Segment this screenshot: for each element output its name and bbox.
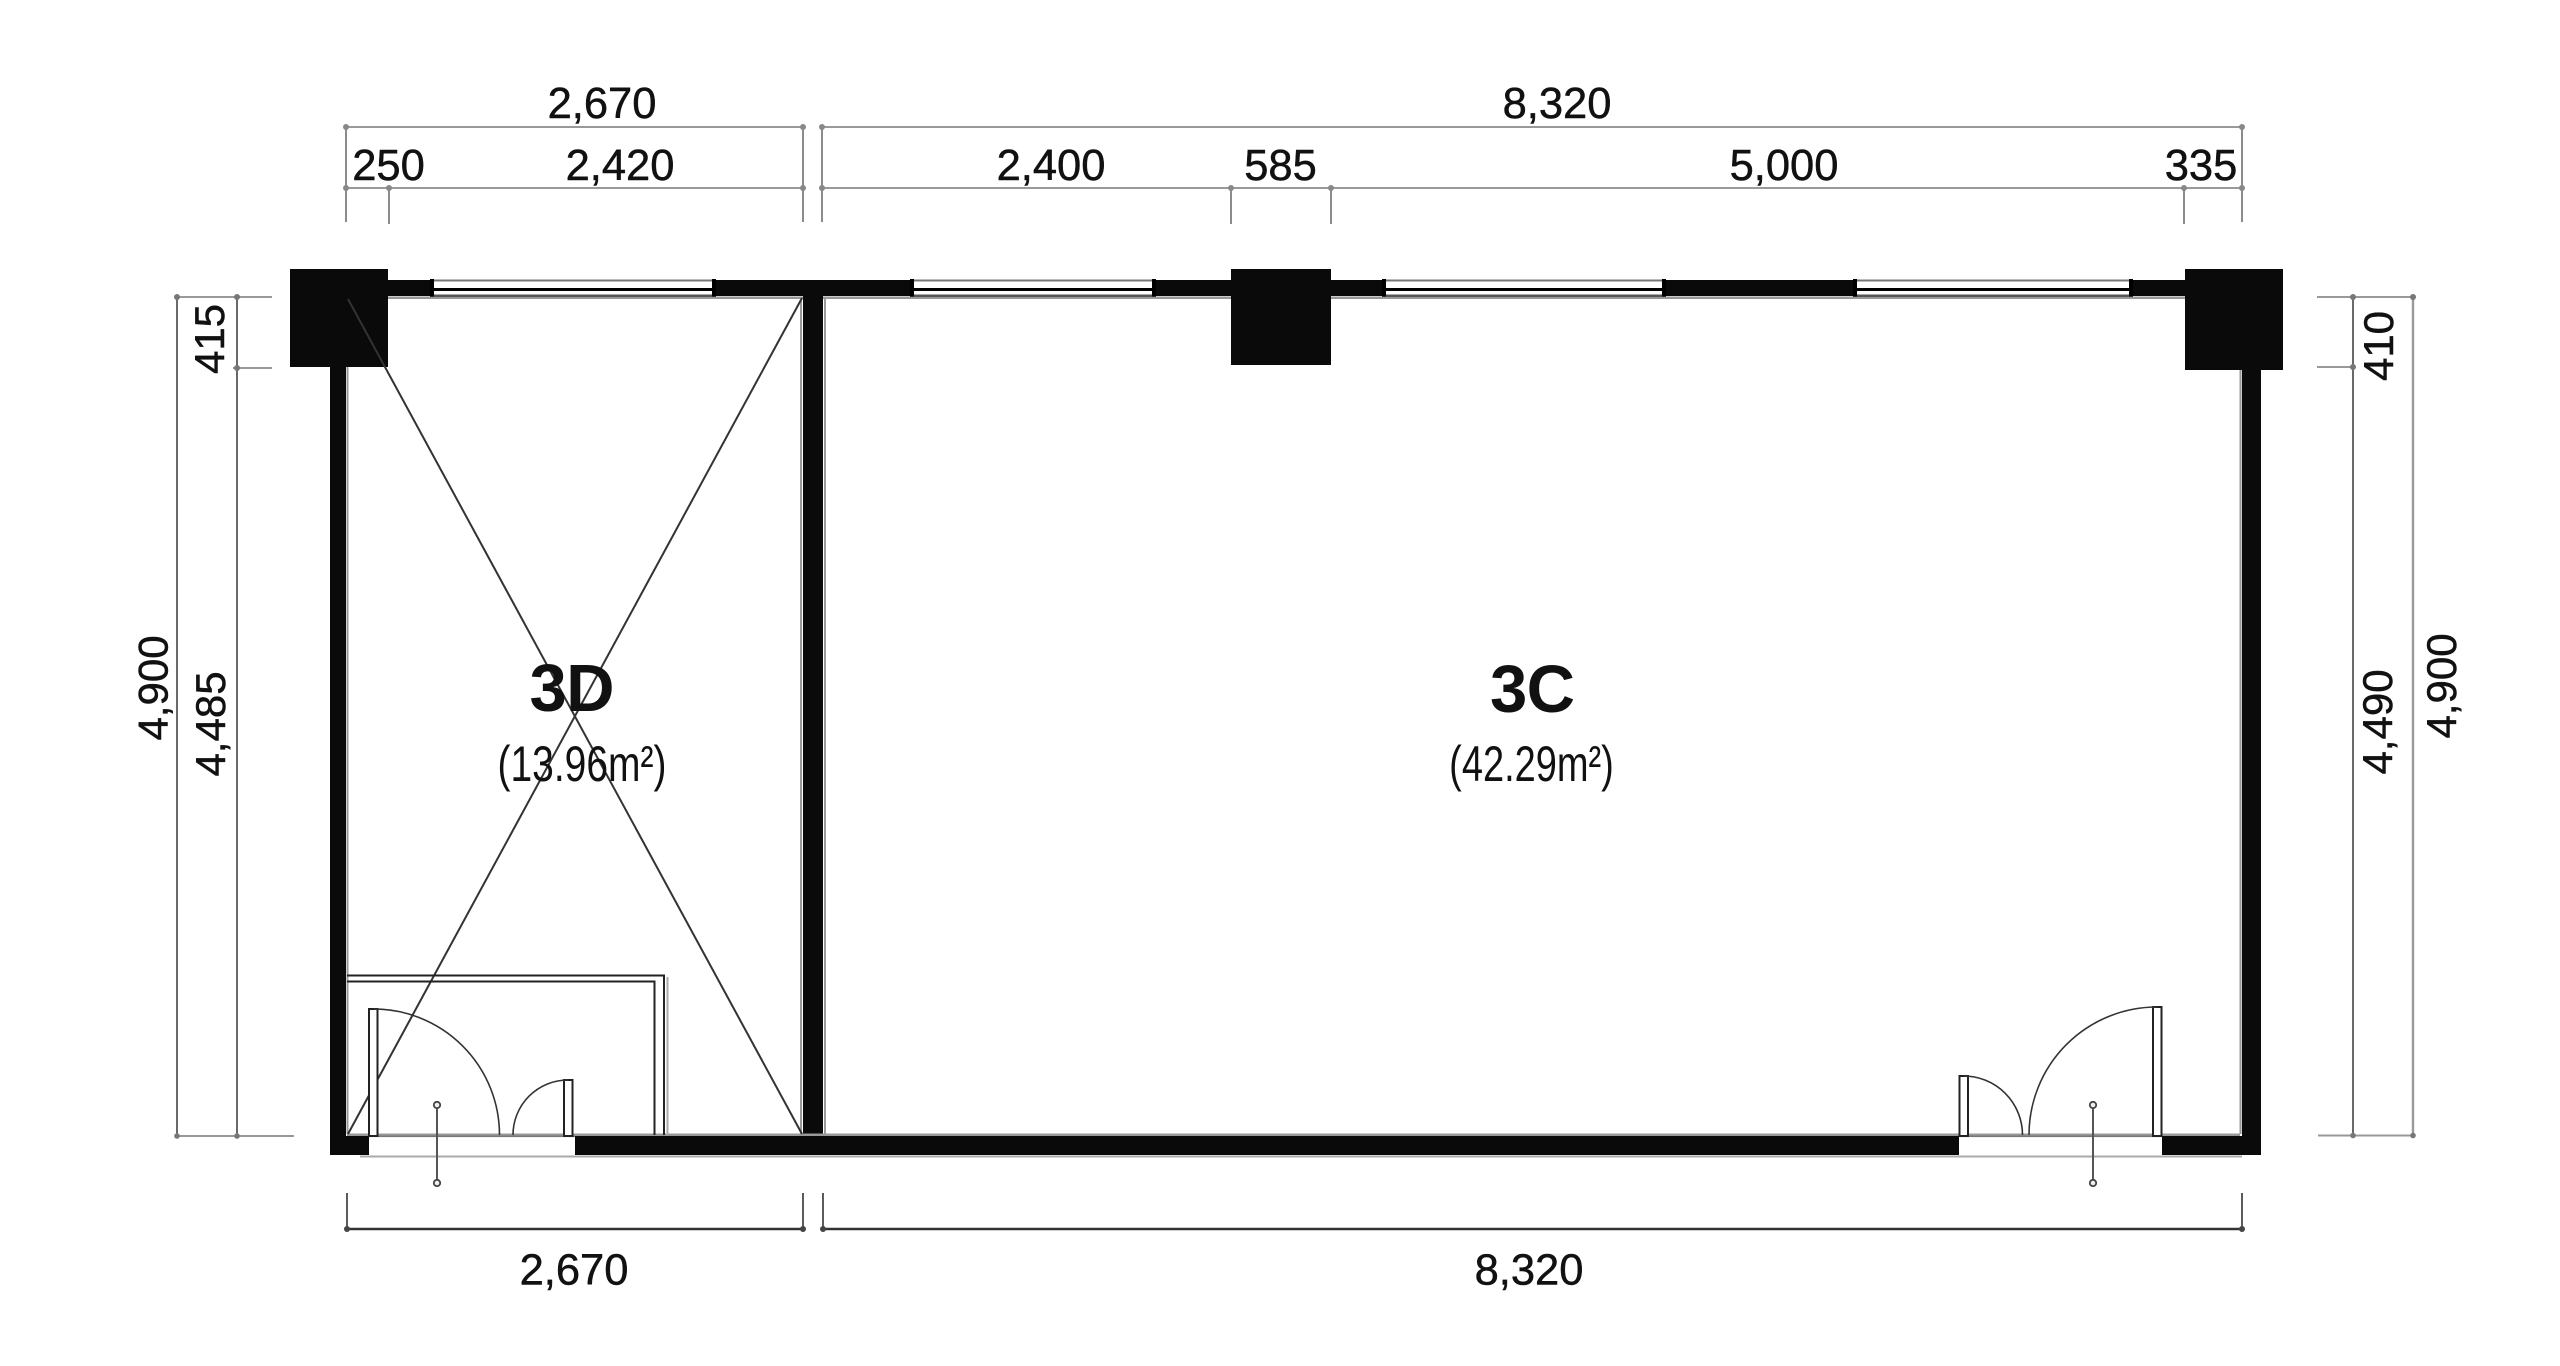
svg-text:4,900: 4,900 (130, 635, 177, 740)
svg-text:2,670: 2,670 (548, 80, 657, 128)
svg-text:8,320: 8,320 (1475, 1247, 1584, 1295)
svg-text:4,490: 4,490 (2354, 669, 2401, 774)
svg-text:2,670: 2,670 (520, 1247, 629, 1295)
svg-text:4,485: 4,485 (187, 671, 234, 776)
svg-text:2,400: 2,400 (997, 142, 1106, 190)
svg-text:250: 250 (352, 142, 425, 190)
svg-text:415: 415 (186, 304, 233, 374)
svg-text:410: 410 (2355, 311, 2402, 381)
svg-text:5,000: 5,000 (1730, 142, 1839, 190)
svg-text:(42.29m²): (42.29m²) (1449, 737, 1614, 792)
svg-text:585: 585 (1244, 142, 1317, 190)
svg-text:2,420: 2,420 (566, 142, 675, 190)
svg-text:8,320: 8,320 (1503, 80, 1612, 128)
svg-text:3C: 3C (1490, 652, 1575, 727)
svg-text:4,900: 4,900 (2418, 633, 2465, 738)
svg-text:(13.96m²): (13.96m²) (497, 735, 666, 792)
svg-text:335: 335 (2165, 142, 2238, 190)
svg-text:3D: 3D (530, 651, 615, 726)
